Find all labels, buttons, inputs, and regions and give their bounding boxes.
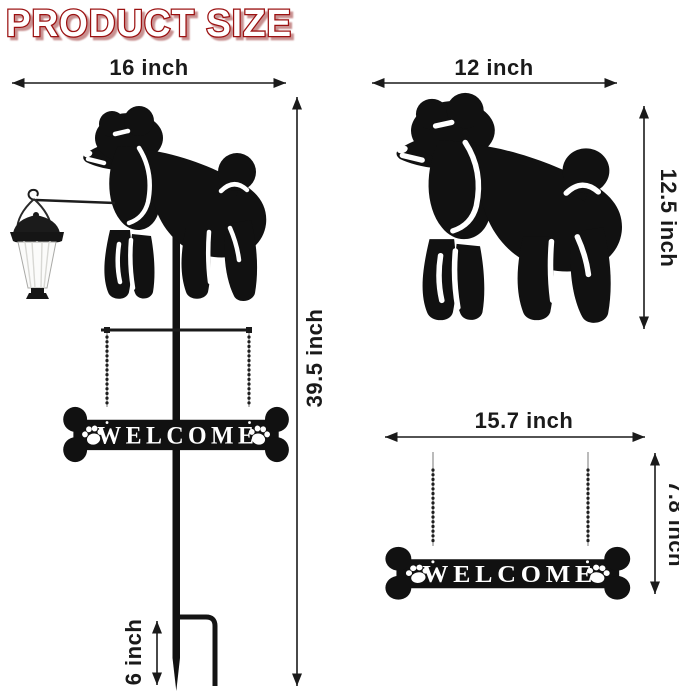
hanger-rod	[36, 200, 115, 203]
lantern-glass	[18, 242, 56, 288]
width-label-poodle: 12 inch	[454, 55, 533, 80]
ground-stake	[173, 236, 216, 691]
stake-depth-arrow: 6 inch	[121, 619, 157, 686]
page-title: PRODUCT SIZE PRODUCT SIZE	[6, 3, 295, 48]
height-label-poodle: 12.5 inch	[656, 169, 679, 268]
full-product-figure: WELCOME 16 inch 39.5 in	[10, 55, 327, 691]
width-arrow-full-product: 16 inch	[12, 55, 286, 83]
width-label-full-product: 16 inch	[109, 55, 188, 80]
height-arrow-sign: 7.8 inch	[655, 453, 679, 594]
solar-lantern	[10, 190, 115, 299]
poodle-silhouette	[396, 93, 622, 323]
lantern-base	[26, 293, 49, 299]
product-size-infographic: PRODUCT SIZE PRODUCT SIZE	[0, 0, 679, 698]
product-size-diagram: PRODUCT SIZE PRODUCT SIZE	[0, 0, 679, 698]
lantern-collar	[31, 288, 44, 293]
page-title-text: PRODUCT SIZE	[6, 3, 292, 45]
lantern-cap-skirt	[10, 232, 64, 243]
poodle-figure: 12 inch 12.5 inch	[372, 55, 679, 329]
welcome-text: WELCOME	[97, 422, 258, 450]
height-arrow-poodle: 12.5 inch	[644, 106, 679, 329]
width-arrow-sign: 15.7 inch	[385, 408, 645, 437]
height-arrow-full-product: 39.5 inch	[297, 97, 327, 686]
stake-prong	[180, 617, 215, 686]
bone-welcome-sign: WELCOME	[385, 547, 630, 600]
width-label-sign: 15.7 inch	[475, 408, 574, 433]
welcome-text: WELCOME	[422, 562, 597, 588]
height-label-sign: 7.8 inch	[664, 481, 679, 567]
height-label-full-product: 39.5 inch	[302, 309, 327, 408]
width-arrow-poodle: 12 inch	[372, 55, 617, 83]
welcome-sign-figure: WELCOME 15.7 inch 7.8 inch	[385, 408, 679, 600]
stake-depth-label: 6 inch	[121, 619, 146, 686]
